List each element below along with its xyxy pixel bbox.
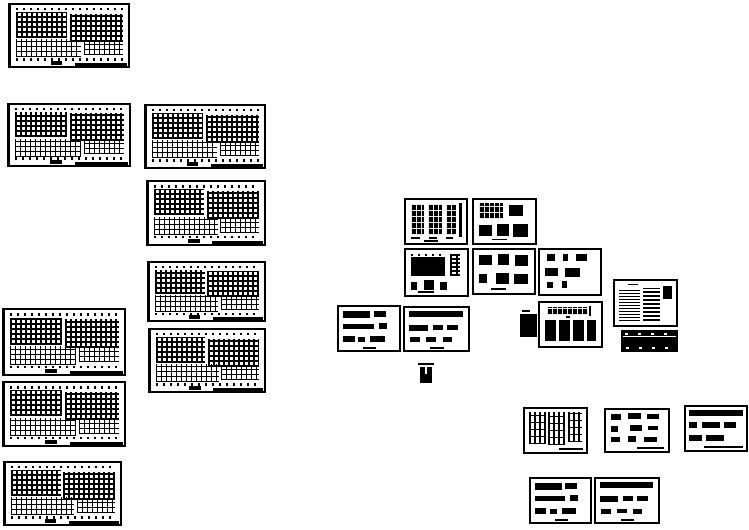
linework-ticks: [10, 386, 119, 388]
linework-mesh1: [79, 347, 119, 362]
general-notes-sheet: [613, 279, 678, 327]
linework-blob: [562, 508, 576, 514]
linework-bar: [555, 519, 568, 521]
linework-ticks: [152, 159, 260, 161]
linework-blob: [570, 495, 578, 501]
linework-mesh2: [207, 191, 260, 220]
linework-blob: [45, 440, 57, 444]
linework-blob: [50, 160, 62, 164]
linework-mesh2: [65, 392, 120, 421]
linework-blob: [370, 336, 384, 342]
linework-blob: [630, 425, 642, 432]
linework-mesh3: [450, 254, 460, 277]
linework-ticks: [15, 108, 124, 110]
linework-dotsblock: [411, 204, 424, 235]
linework-blob: [648, 426, 658, 431]
linework-blob: [633, 509, 642, 514]
linework-blob: [545, 320, 556, 341]
linework-mesh2: [10, 390, 62, 416]
linework-blob: [611, 414, 621, 420]
linework-mesh2: [156, 337, 206, 363]
linework-blob: [587, 320, 596, 341]
linework-blob: [497, 224, 509, 236]
linework-bar: [621, 519, 635, 521]
linework-blob: [535, 508, 547, 514]
linework-blob: [409, 311, 463, 317]
linework-blob: [600, 482, 653, 488]
linework-ticks: [11, 466, 116, 468]
floor-plan-3: [144, 104, 266, 169]
linework-blob: [358, 337, 365, 342]
linework-ticks: [152, 109, 260, 111]
linework-blob: [563, 254, 568, 262]
linework-blob: [187, 162, 199, 166]
linework-mesh1: [152, 140, 218, 158]
linework-blob: [514, 274, 528, 283]
linework-blob: [379, 323, 387, 329]
linework-blob: [409, 325, 428, 331]
linework-mesh1: [15, 139, 82, 157]
linework-mesh2: [154, 189, 205, 215]
linework-lines2: [643, 288, 660, 321]
linework-blob: [440, 282, 447, 290]
linework-mesh1: [221, 296, 260, 310]
linework-blob: [446, 237, 453, 239]
detail-sheet-a: [472, 198, 537, 245]
linework-blob: [644, 437, 656, 442]
linework-blob: [689, 435, 702, 441]
linework-bar: [430, 347, 444, 349]
linework-mesh1: [84, 40, 124, 55]
linework-dotsblock: [547, 307, 587, 315]
detail-bar-sheet: [684, 405, 748, 452]
floor-plan-6: [148, 328, 266, 393]
floor-plan-5: [147, 261, 266, 322]
linework-blob: [515, 255, 528, 266]
linework-mesh1: [155, 295, 219, 312]
wall-section-sheet: [523, 407, 588, 454]
linework-mesh1: [10, 418, 77, 437]
linework-blob: [573, 320, 584, 341]
linework-blob: [647, 414, 659, 419]
linework-dotsblock: [446, 205, 457, 235]
floor-plan-2: [7, 103, 131, 167]
linework-mesh1: [154, 217, 218, 236]
detail-sheet-b: [472, 248, 536, 295]
linework-ticks: [154, 236, 260, 238]
linework-blob: [623, 496, 633, 501]
linework-blob: [576, 254, 587, 262]
linework-dotsblock: [428, 204, 442, 235]
linework-blob: [565, 483, 577, 489]
linework-mesh1: [84, 140, 124, 154]
linework-mesh1: [220, 218, 259, 233]
linework-mesh1: [221, 365, 259, 380]
linework-lines: [619, 288, 640, 321]
solid-detail-chip: [520, 314, 537, 337]
linework-blob: [189, 386, 200, 390]
linework-blob: [498, 254, 509, 265]
linework-blob: [411, 257, 445, 276]
linework-blob: [547, 254, 555, 261]
linework-blob: [418, 291, 434, 293]
linework-bar: [363, 347, 376, 349]
linework-blob: [429, 237, 437, 239]
linework-blob: [617, 509, 627, 513]
bar-detail-sheet-1: [337, 305, 401, 352]
linework-blob: [51, 61, 63, 65]
linework-mesh2: [70, 14, 124, 42]
column-elevation-sheet: [404, 198, 468, 245]
linework-blob: [513, 224, 528, 237]
linework-blob: [491, 288, 507, 290]
linework-mesh1: [77, 498, 116, 513]
linework-blob: [663, 286, 673, 299]
bar-detail-sheet-3: [529, 477, 592, 524]
linework-mesh1: [11, 497, 75, 515]
floor-plan-4: [146, 180, 266, 246]
beam-and-columns-sheet: [538, 301, 603, 348]
linework-blob: [706, 435, 724, 441]
linework-mesh1: [10, 346, 77, 365]
linework-meshv: [548, 412, 565, 446]
linework-bar: [212, 241, 263, 244]
detail-sheet-c: [538, 248, 602, 296]
floor-plan-8: [2, 381, 126, 447]
linework-bar: [559, 448, 583, 450]
linework-mesh2: [63, 472, 115, 500]
linework-blob: [628, 284, 638, 286]
linework-blob: [522, 310, 531, 312]
linework-bar: [70, 371, 122, 374]
linework-blob: [492, 239, 507, 241]
linework-bar: [69, 521, 119, 524]
floor-plan-9: [3, 461, 122, 526]
linework-blob: [189, 315, 200, 318]
linework-blob: [426, 337, 436, 341]
linework-blob: [600, 496, 619, 502]
linework-blob: [374, 311, 386, 317]
linework-ticks: [156, 333, 260, 335]
linework-blob: [343, 311, 371, 318]
small-section-mark: [420, 367, 432, 383]
linework-ticks: [155, 313, 260, 315]
linework-blob: [689, 410, 743, 416]
linework-ticks: [154, 185, 260, 187]
linework-mesh2: [152, 113, 203, 139]
linework-mesh2: [65, 319, 120, 348]
linework-bar: [75, 63, 126, 66]
linework-bar: [70, 442, 122, 445]
linework-dotsblock: [479, 203, 503, 218]
linework-blob: [724, 422, 736, 428]
linework-blob: [550, 509, 557, 514]
floor-plan-7: [2, 308, 126, 376]
linework-blob: [559, 320, 570, 341]
linework-mesh2: [16, 12, 67, 38]
linework-bar: [589, 306, 591, 315]
linework-blob: [547, 282, 552, 288]
linework-ticks: [15, 157, 124, 159]
linework-blob: [628, 413, 640, 419]
linework-blob: [611, 426, 618, 433]
linework-blob: [496, 273, 509, 283]
linework-wline: [623, 336, 676, 337]
linework-meshv: [529, 412, 546, 444]
linework-blob: [479, 274, 487, 283]
linework-blob: [601, 509, 611, 514]
linework-mesh2: [15, 112, 67, 137]
linework-blob: [411, 282, 417, 290]
floor-plan-1: [8, 3, 130, 68]
linework-blob: [447, 325, 458, 330]
drawing-canvas: [0, 0, 749, 530]
linework-mesh1: [79, 419, 119, 434]
linework-bar: [459, 203, 461, 237]
linework-blob: [479, 255, 492, 265]
linework-blob: [611, 437, 620, 442]
linework-blob: [410, 337, 420, 342]
linework-bar: [213, 388, 263, 391]
linework-mesh1: [156, 364, 219, 382]
schedule-table: [621, 330, 678, 352]
linework-blob: [535, 483, 562, 490]
linework-blob: [443, 337, 452, 342]
linework-bar: [704, 446, 743, 448]
linework-ticks: [156, 383, 260, 385]
linework-blob: [509, 205, 522, 216]
linework-bar: [637, 447, 664, 449]
linework-blob: [479, 225, 492, 236]
linework-ticks: [155, 266, 260, 268]
linework-mesh2: [70, 113, 125, 141]
linework-ticks: [11, 516, 116, 518]
linework-ticks: [411, 254, 445, 256]
linework-bar: [211, 164, 262, 167]
linework-blob: [45, 369, 57, 373]
linework-blob: [566, 316, 571, 318]
linework-ticks: [10, 366, 119, 369]
linework-mesh1: [220, 141, 260, 156]
linework-mesh2: [208, 339, 260, 367]
linework-blob: [562, 281, 567, 288]
linework-blob: [343, 336, 355, 342]
linework-mesh2: [207, 271, 259, 297]
linework-ticks: [10, 313, 119, 316]
beam-elevation-sheet: [404, 248, 469, 297]
linework-blob: [689, 422, 697, 428]
linework-blob: [565, 268, 579, 278]
linework-blob: [702, 422, 720, 429]
linework-ticks: [16, 58, 124, 60]
bar-detail-sheet-2: [403, 306, 470, 352]
linework-mesh2: [155, 270, 205, 294]
linework-mesh2: [10, 318, 62, 345]
linework-blob: [433, 325, 443, 330]
linework-blob: [411, 237, 419, 239]
linework-blob: [188, 239, 200, 243]
linework-bar: [213, 317, 263, 320]
linework-mesh2: [11, 470, 61, 496]
linework-blob: [535, 496, 566, 501]
linework-wticks: [625, 333, 675, 335]
linework-blob: [45, 519, 56, 523]
linework-blob: [637, 496, 648, 501]
linework-blob: [628, 436, 635, 442]
detail-grid-sheet: [604, 408, 670, 453]
linework-mesh2: [206, 115, 260, 143]
linework-meshv: [568, 412, 583, 441]
linework-blob: [424, 240, 438, 242]
linework-ticks: [10, 437, 119, 439]
linework-blob: [343, 324, 374, 329]
linework-blob: [545, 268, 558, 276]
bar-detail-sheet-4: [594, 477, 660, 524]
linework-ticks: [16, 8, 124, 10]
linework-bar: [75, 162, 127, 165]
linework-blob: [424, 280, 434, 290]
linework-wticks: [626, 347, 673, 349]
linework-wline: [425, 367, 428, 374]
linework-mesh1: [16, 39, 82, 57]
